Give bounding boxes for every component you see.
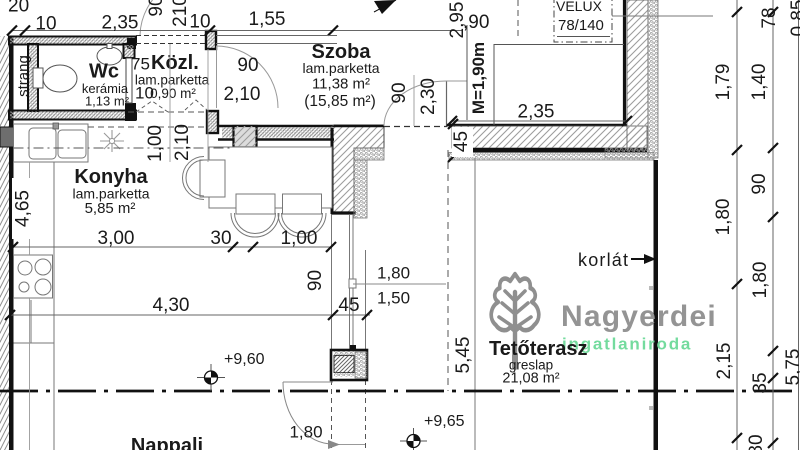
svg-text:1,80: 1,80 [713,199,734,236]
svg-text:10: 10 [35,14,56,35]
svg-text:90: 90 [237,55,258,76]
svg-text:korlát: korlát [578,250,629,270]
svg-text:4,30: 4,30 [153,295,190,316]
svg-text:45: 45 [451,131,472,152]
svg-text:1,50: 1,50 [377,289,410,308]
svg-text:+9,60: +9,60 [224,351,265,368]
svg-text:2,30: 2,30 [418,78,439,115]
svg-text:lam.parketta: lam.parketta [302,60,379,76]
svg-text:80: 80 [746,434,767,450]
svg-text:2,35: 2,35 [518,102,555,123]
svg-text:1,79: 1,79 [713,64,734,101]
svg-text:5,45: 5,45 [453,337,474,374]
svg-text:90: 90 [389,82,410,103]
svg-text:strang: strang [15,55,32,97]
svg-text:Nappali: Nappali [131,435,203,450]
svg-text:90: 90 [305,270,326,291]
svg-text:4,65: 4,65 [13,190,34,227]
svg-text:1,55: 1,55 [249,9,286,30]
svg-text:Nagyerdei: Nagyerdei [561,300,717,333]
svg-text:1,80: 1,80 [377,264,410,283]
svg-text:1,80: 1,80 [289,423,322,442]
svg-text:,90: ,90 [463,12,489,33]
svg-text:0,90 m²: 0,90 m² [150,86,196,101]
svg-text:45: 45 [338,295,359,316]
svg-text:5,85 m²: 5,85 m² [85,200,136,217]
svg-text:20: 20 [8,0,29,17]
svg-text:1,00: 1,00 [281,228,318,249]
svg-text:78/140: 78/140 [558,17,604,34]
svg-text:1,13 m²: 1,13 m² [85,94,130,109]
svg-text:210: 210 [170,0,191,27]
svg-text:78: 78 [759,7,780,28]
svg-text:+9,65: +9,65 [424,413,465,430]
svg-text:21,08 m²: 21,08 m² [502,371,559,387]
svg-text:M=1,90m: M=1,90m [469,42,488,114]
svg-text:2,10: 2,10 [172,124,193,161]
svg-text:11,38 m²: 11,38 m² [312,76,370,93]
svg-text:Wc: Wc [89,61,119,83]
svg-text:2,15: 2,15 [714,343,735,380]
svg-text:90: 90 [749,173,770,194]
svg-text:10: 10 [135,84,154,103]
svg-text:5,75: 5,75 [783,349,800,386]
svg-text:3,00: 3,00 [98,228,135,249]
svg-text:2,35: 2,35 [102,13,139,34]
svg-text:90: 90 [146,0,167,17]
svg-text:1,00: 1,00 [145,125,166,162]
svg-text:VELUX: VELUX [556,0,603,14]
svg-text:1,80: 1,80 [750,262,771,299]
svg-text:(15,85 m²): (15,85 m²) [304,93,376,110]
svg-text:1,40: 1,40 [749,64,770,101]
svg-text:Közl.: Közl. [151,52,199,74]
svg-text:75: 75 [131,55,150,74]
svg-text:30: 30 [210,228,231,249]
svg-text:0,85: 0,85 [788,0,800,36]
svg-text:10: 10 [189,12,210,33]
svg-text:2,10: 2,10 [224,84,261,105]
svg-text:35: 35 [750,372,771,393]
